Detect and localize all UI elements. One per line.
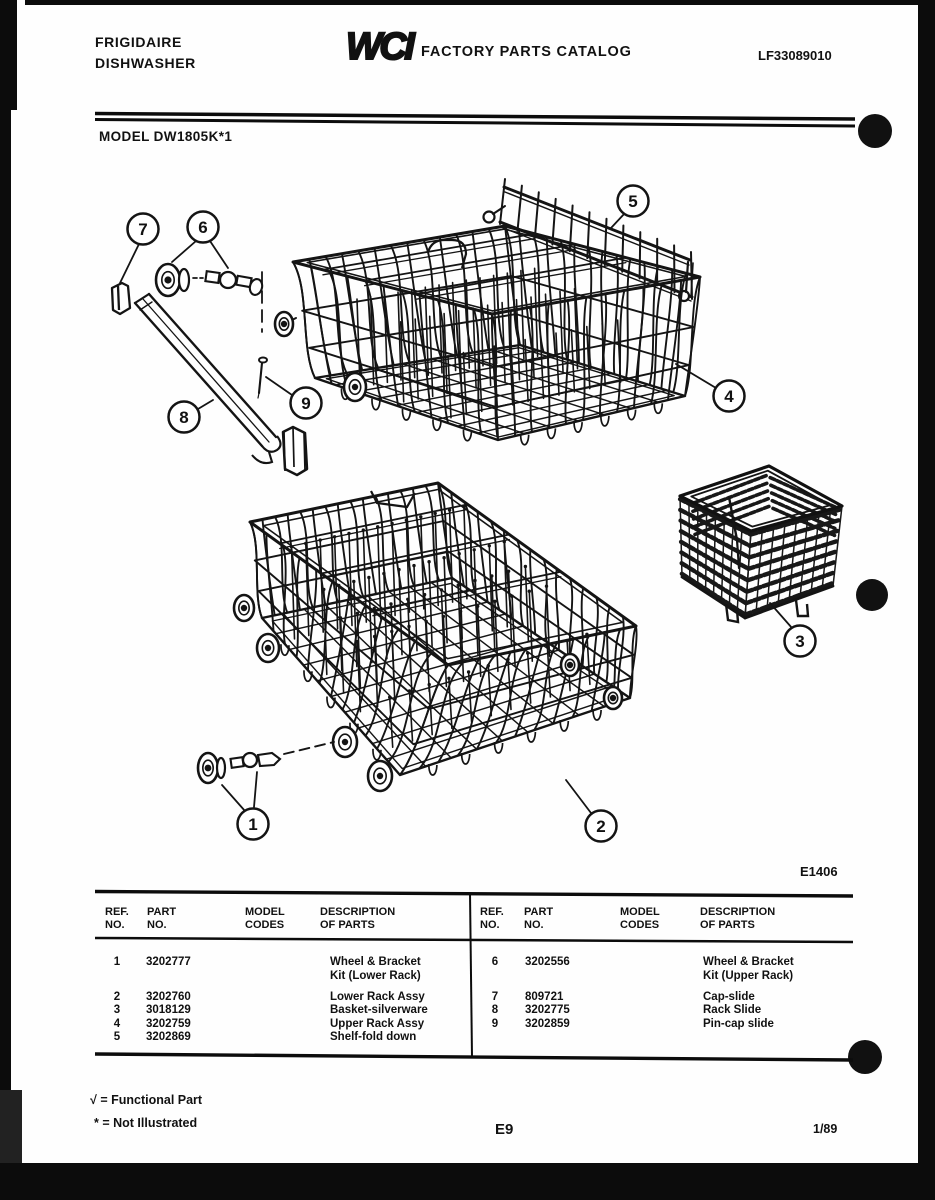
svg-text:FACTORY PARTS CATALOG: FACTORY PARTS CATALOG	[421, 44, 632, 60]
svg-text:FRIGIDAIRE: FRIGIDAIRE	[95, 34, 182, 50]
svg-text:OF PARTS: OF PARTS	[320, 919, 375, 931]
svg-text:LF33089010: LF33089010	[758, 48, 832, 63]
svg-text:1: 1	[248, 815, 257, 834]
svg-text:3: 3	[795, 632, 804, 651]
svg-text:3018129: 3018129	[146, 1004, 191, 1016]
svg-text:6: 6	[492, 956, 498, 968]
svg-text:REF.: REF.	[105, 906, 129, 918]
svg-text:CODES: CODES	[620, 919, 659, 931]
svg-text:9: 9	[492, 1018, 498, 1030]
svg-text:Kit (Upper Rack): Kit (Upper Rack)	[703, 970, 793, 982]
svg-text:7: 7	[138, 220, 147, 239]
svg-text:Cap-slide: Cap-slide	[703, 991, 755, 1003]
svg-text:809721: 809721	[525, 991, 564, 1003]
svg-text:8: 8	[179, 408, 188, 427]
svg-text:NO.: NO.	[105, 919, 125, 931]
svg-text:2: 2	[596, 817, 605, 836]
svg-text:5: 5	[628, 192, 637, 211]
svg-text:1/89: 1/89	[813, 1122, 837, 1136]
svg-text:PART: PART	[147, 906, 176, 918]
svg-text:3202759: 3202759	[146, 1018, 191, 1030]
svg-text:NO.: NO.	[147, 919, 167, 931]
svg-text:NO.: NO.	[480, 919, 500, 931]
svg-text:MODEL: MODEL	[620, 906, 660, 918]
svg-text:3202775: 3202775	[525, 1004, 570, 1016]
svg-text:4: 4	[724, 387, 734, 406]
svg-text:3202869: 3202869	[146, 1031, 191, 1043]
svg-text:Wheel & Bracket: Wheel & Bracket	[703, 956, 794, 968]
svg-text:1: 1	[114, 956, 121, 968]
svg-text:DESCRIPTION: DESCRIPTION	[700, 906, 775, 918]
svg-text:Upper Rack Assy: Upper Rack Assy	[330, 1018, 425, 1030]
svg-text:Shelf-fold down: Shelf-fold down	[330, 1031, 416, 1043]
svg-text:Pin-cap slide: Pin-cap slide	[703, 1018, 774, 1030]
svg-text:WCI: WCI	[346, 26, 416, 68]
svg-text:8: 8	[492, 1004, 499, 1016]
svg-text:2: 2	[114, 991, 120, 1003]
svg-text:4: 4	[114, 1018, 121, 1030]
svg-text:Kit (Lower Rack): Kit (Lower Rack)	[330, 970, 421, 982]
svg-text:√ = Functional Part: √ = Functional Part	[90, 1093, 203, 1107]
svg-text:Lower Rack Assy: Lower Rack Assy	[330, 991, 425, 1003]
svg-text:6: 6	[198, 218, 207, 237]
svg-text:Rack Slide: Rack Slide	[703, 1004, 761, 1016]
svg-text:3202859: 3202859	[525, 1018, 570, 1030]
svg-text:3: 3	[114, 1004, 120, 1016]
svg-text:MODEL DW1805K*1: MODEL DW1805K*1	[99, 129, 232, 144]
svg-text:3202556: 3202556	[525, 956, 570, 968]
svg-text:9: 9	[301, 394, 310, 413]
svg-text:7: 7	[492, 991, 498, 1003]
svg-text:Basket-silverware: Basket-silverware	[330, 1004, 428, 1016]
svg-text:* = Not Illustrated: * = Not Illustrated	[94, 1116, 197, 1130]
svg-text:5: 5	[114, 1031, 121, 1043]
svg-text:3202777: 3202777	[146, 956, 191, 968]
svg-text:CODES: CODES	[245, 919, 284, 931]
svg-text:OF PARTS: OF PARTS	[700, 919, 755, 931]
svg-text:DESCRIPTION: DESCRIPTION	[320, 906, 395, 918]
svg-text:3202760: 3202760	[146, 991, 191, 1003]
svg-text:NO.: NO.	[524, 919, 544, 931]
svg-text:REF.: REF.	[480, 906, 504, 918]
svg-text:E1406: E1406	[800, 864, 838, 879]
svg-text:DISHWASHER: DISHWASHER	[95, 55, 196, 71]
svg-text:MODEL: MODEL	[245, 906, 285, 918]
svg-text:E9: E9	[495, 1121, 513, 1138]
svg-text:Wheel & Bracket: Wheel & Bracket	[330, 956, 421, 968]
svg-text:PART: PART	[524, 906, 553, 918]
